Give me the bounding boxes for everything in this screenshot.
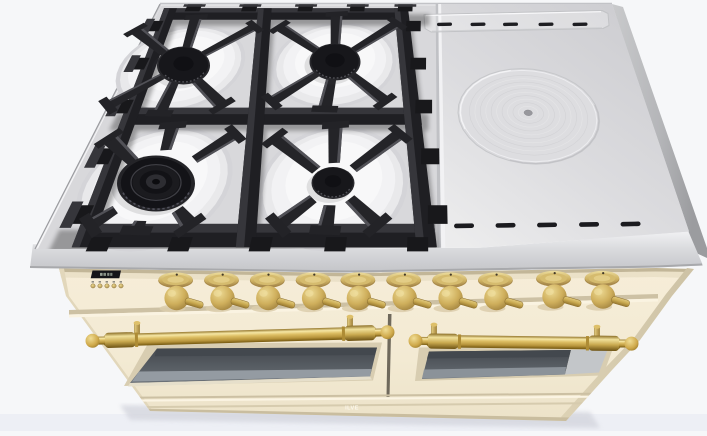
svg-text:ILVE: ILVE xyxy=(345,406,359,412)
